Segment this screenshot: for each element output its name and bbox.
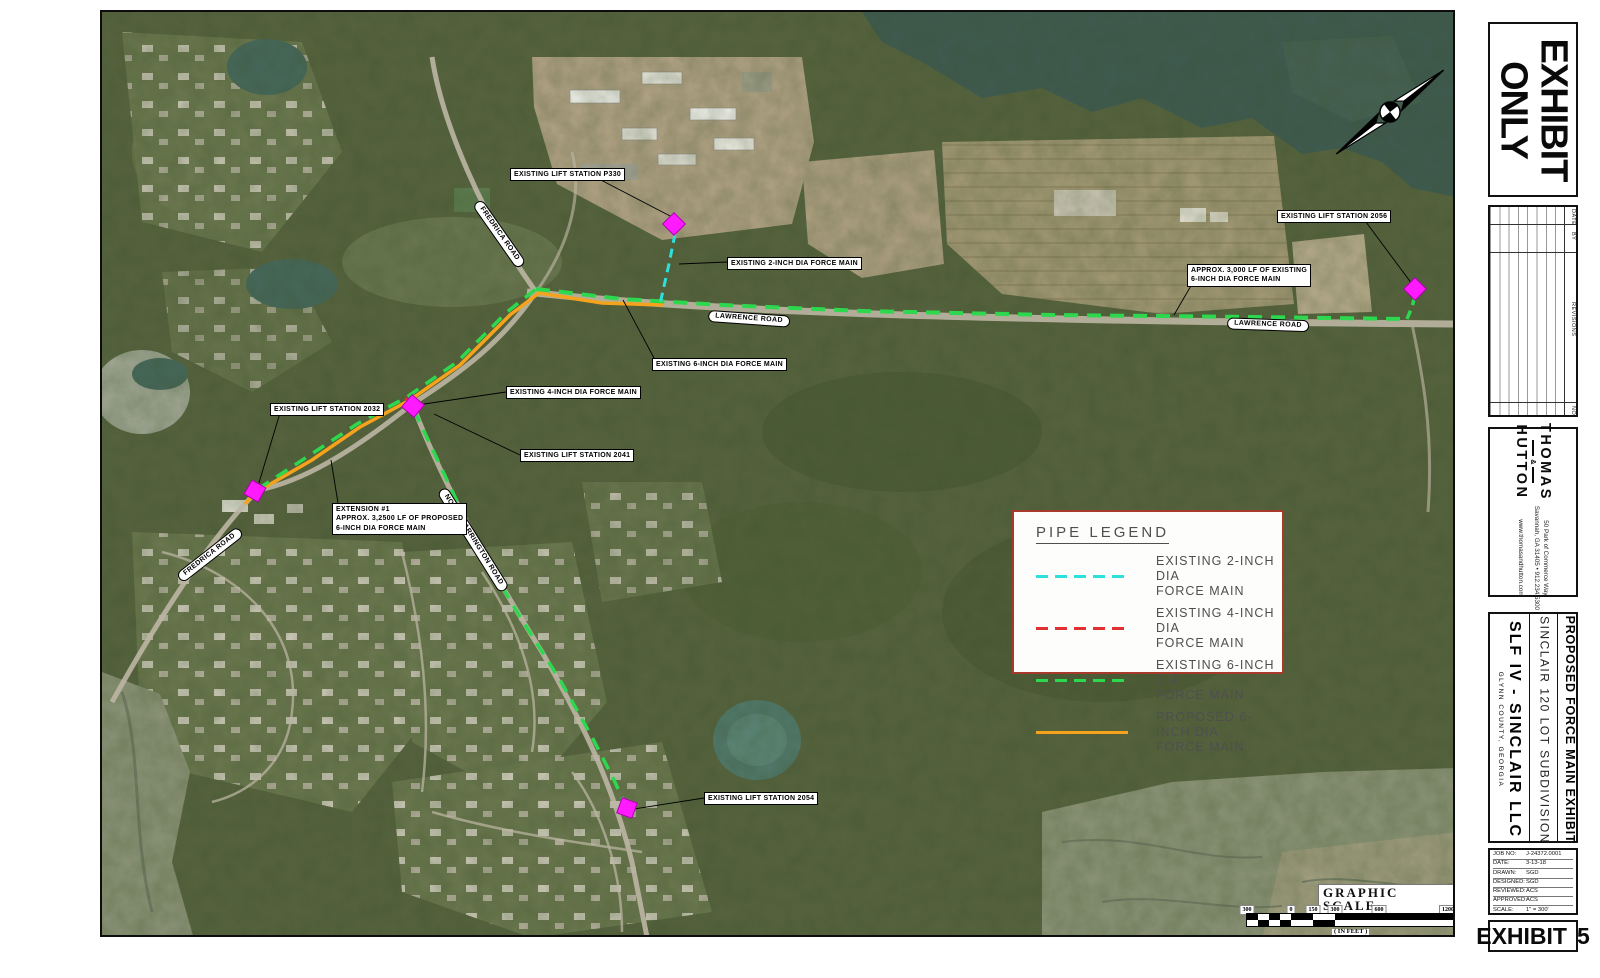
firm-address: 50 Park of Commerce Way Savannah, GA 314…	[1516, 506, 1550, 610]
revisions-grid	[1490, 207, 1564, 415]
firm-ampersand: &	[1530, 423, 1537, 501]
callout-lift-station-p330: EXISTING LIFT STATION P330	[510, 168, 625, 181]
legend-item-existing-6in: EXISTING 6-INCH DIA FORCE MAIN	[1036, 658, 1282, 703]
job-row-date: DATE: 3-13-18	[1493, 860, 1573, 869]
job-value: ACS	[1526, 898, 1538, 904]
legend-swatch-existing-6in	[1036, 679, 1128, 682]
firm-name-line2: HUTTON	[1514, 423, 1529, 501]
revisions-col-date: DATE	[1570, 209, 1576, 225]
pipe-legend: PIPE LEGEND EXISTING 2-INCH DIA FORCE MA…	[1012, 510, 1284, 674]
callout-lift-station-2032: EXISTING LIFT STATION 2032	[270, 403, 384, 416]
firm-name-line1: THOMAS	[1538, 423, 1553, 501]
job-label: DESIGNED:	[1493, 880, 1526, 886]
exhibit-only-line2: ONLY	[1493, 60, 1533, 158]
job-row-designed: DESIGNED: SGD	[1493, 879, 1573, 888]
job-row-scale: SCALE: 1" = 300'	[1493, 906, 1573, 915]
job-label: REVIEWED:	[1493, 889, 1526, 895]
project-name-strip: SINCLAIR 120 LOT SUBDIVISION	[1529, 614, 1557, 841]
job-row-drawn: DRAWN: SGD	[1493, 869, 1573, 878]
job-label: DATE:	[1493, 861, 1526, 867]
scale-bar	[1246, 913, 1455, 927]
revisions-table: DATE BY REVISIONS NO	[1488, 205, 1578, 417]
callout-extension-1: EXTENSION #1 APPROX. 3,2500 LF OF PROPOS…	[332, 503, 467, 535]
revisions-col-revisions: REVISIONS	[1570, 302, 1576, 336]
callout-approx-3000lf: APPROX. 3,000 LF OF EXISTING 6-INCH DIA …	[1187, 264, 1311, 287]
project-name: SINCLAIR 120 LOT SUBDIVISION	[1538, 616, 1550, 844]
callout-existing-4in: EXISTING 4-INCH DIA FORCE MAIN	[506, 386, 641, 399]
callout-lift-station-2054: EXISTING LIFT STATION 2054	[704, 792, 818, 805]
legend-label-existing-6in: EXISTING 6-INCH DIA FORCE MAIN	[1156, 658, 1282, 703]
map-frame: EXISTING LIFT STATION P330 EXISTING 2-IN…	[100, 10, 1455, 937]
firm-block: THOMAS & HUTTON 50 Park of Commerce Way …	[1488, 427, 1578, 597]
legend-swatch-proposed-6in	[1036, 731, 1128, 734]
callout-lift-station-2041: EXISTING LIFT STATION 2041	[520, 449, 634, 462]
legend-label-existing-4in: EXISTING 4-INCH DIA FORCE MAIN	[1156, 606, 1282, 651]
exhibit-number-block: EXHIBIT 5	[1488, 920, 1578, 952]
job-row-reviewed: REVIEWED: ACS	[1493, 888, 1573, 897]
exhibit-word: EXHIBIT	[1476, 925, 1567, 948]
firm-address-line2: Savannah, GA 31405 • 912.234.5300	[1531, 506, 1540, 610]
legend-item-existing-4in: EXISTING 4-INCH DIA FORCE MAIN	[1036, 606, 1282, 651]
exhibit-only-line1: EXHIBIT	[1533, 38, 1573, 181]
revisions-col-no: NO	[1570, 406, 1576, 415]
sheet-title-strip: PROPOSED FORCE MAIN EXHIBIT	[1557, 614, 1580, 841]
revisions-col-by: BY	[1570, 232, 1576, 240]
job-info-table: JOB NO: J-24372.0001 DATE: 3-13-18 DRAWN…	[1488, 848, 1578, 915]
firm-address-line1: 50 Park of Commerce Way	[1541, 506, 1550, 610]
graphic-scale: GRAPHIC SCALE 300 0 150 300 600 1200 ( I…	[1220, 882, 1455, 937]
project-block: SLF IV - SINCLAIR LLC GLYNN COUNTY, GEOR…	[1488, 612, 1578, 843]
job-row-jobno: JOB NO: J-24372.0001	[1493, 851, 1573, 860]
job-value: ACS	[1526, 889, 1538, 895]
pipe-legend-title: PIPE LEGEND	[1036, 525, 1169, 544]
legend-label-proposed-6in: PROPOSED 6-INCH DIA FORCE MAIN	[1156, 710, 1282, 755]
sheet-title: PROPOSED FORCE MAIN EXHIBIT	[1563, 616, 1576, 844]
job-label: SCALE:	[1493, 908, 1526, 914]
exhibit-only-stamp: EXHIBIT ONLY	[1488, 22, 1578, 197]
job-label: APPROVED:	[1493, 898, 1526, 904]
job-value: J-24372.0001	[1526, 852, 1561, 858]
callout-lift-station-2056: EXISTING LIFT STATION 2056	[1277, 210, 1391, 223]
job-row-approved: APPROVED: ACS	[1493, 897, 1573, 906]
job-value: SGD	[1526, 871, 1539, 877]
job-label: JOB NO:	[1493, 852, 1526, 858]
scale-unit-note: ( IN FEET )	[1332, 929, 1369, 936]
legend-swatch-existing-4in	[1036, 627, 1128, 630]
legend-swatch-existing-2in	[1036, 575, 1128, 578]
project-client-strip: SLF IV - SINCLAIR LLC GLYNN COUNTY, GEOR…	[1490, 614, 1529, 841]
exhibit-number: 5	[1577, 925, 1590, 948]
firm-website: www.thomasandhutton.com	[1516, 506, 1525, 610]
job-value: 1" = 300'	[1526, 908, 1549, 914]
callout-existing-6in: EXISTING 6-INCH DIA FORCE MAIN	[652, 358, 787, 371]
job-value: SGD	[1526, 880, 1539, 886]
callout-existing-2in: EXISTING 2-INCH DIA FORCE MAIN	[727, 257, 862, 270]
job-label: DRAWN:	[1493, 871, 1526, 877]
project-location: GLYNN COUNTY, GEORGIA	[1497, 672, 1504, 788]
legend-item-proposed-6in: PROPOSED 6-INCH DIA FORCE MAIN	[1036, 710, 1282, 755]
legend-label-existing-2in: EXISTING 2-INCH DIA FORCE MAIN	[1156, 554, 1282, 599]
project-client: SLF IV - SINCLAIR LLC	[1506, 621, 1522, 838]
legend-item-existing-2in: EXISTING 2-INCH DIA FORCE MAIN	[1036, 554, 1282, 599]
job-value: 3-13-18	[1526, 861, 1546, 867]
firm-name: THOMAS & HUTTON	[1514, 423, 1552, 501]
